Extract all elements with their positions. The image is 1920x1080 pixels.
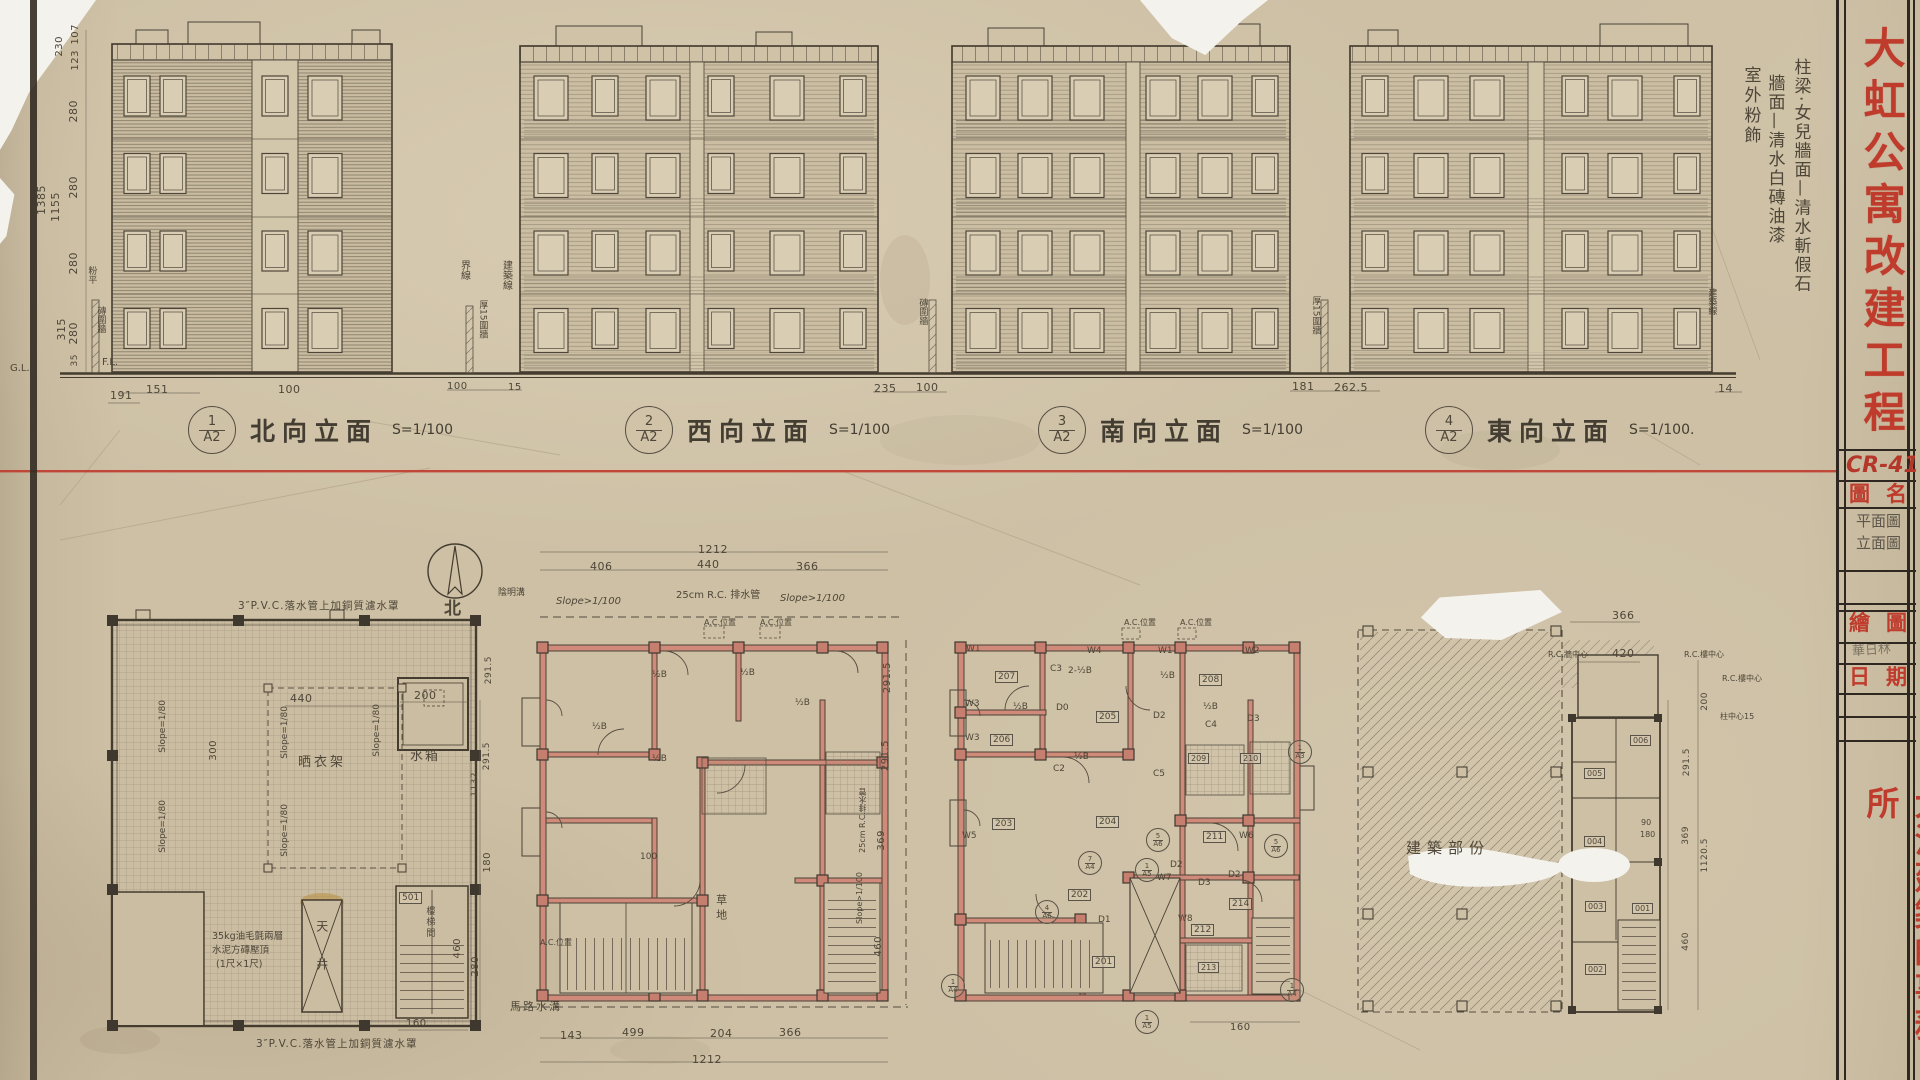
drawing-number: CR-411 <box>1846 453 1920 478</box>
wall-thickness: ½B <box>1203 702 1218 712</box>
door-tag: D3 <box>1247 714 1260 724</box>
column-tag: C4 <box>1205 720 1217 730</box>
detail-sheet: A2 <box>1053 431 1070 445</box>
water-tank-label: 水箱 <box>410 750 440 765</box>
titleblock-date-label: 日期 <box>1849 665 1920 689</box>
drying-rack-label: 晒衣架 <box>298 756 346 771</box>
window-tag: W4 <box>1087 646 1102 656</box>
dim: 90 <box>1641 818 1651 827</box>
building-line-note: 建築線 <box>1706 288 1716 315</box>
dim: 460 <box>873 936 885 957</box>
boundary-note: 界線 <box>458 260 470 280</box>
room-number: 206 <box>990 734 1013 746</box>
room-number: 213 <box>1198 962 1219 973</box>
roof-note-top: 3″P.V.C.落水管上加銅質濾水罩 <box>238 600 399 612</box>
ac-note: A.C.位置 <box>760 618 792 627</box>
dim: 291.5 <box>880 740 892 771</box>
dim: 14 <box>1718 383 1733 396</box>
dim: 100 <box>916 382 939 395</box>
lightwell-label: 天井 <box>314 920 328 996</box>
wall-thickness: ½B <box>652 754 667 764</box>
slope-note: Slope>1/100 <box>855 872 864 924</box>
titleblock-name-value-1: 平面圖 <box>1856 513 1901 530</box>
titleblock-rule <box>1836 449 1916 451</box>
room-number: 201 <box>1092 956 1115 968</box>
window-tag: W1 <box>966 644 981 654</box>
section-mark: 4A6 <box>1035 900 1059 924</box>
detail-number: 2 <box>636 415 662 431</box>
window-tag: W5 <box>962 831 977 841</box>
elevation-east-drawing <box>1350 24 1712 372</box>
finish-note-1: 柱梁·女兒牆面—清水斬假石 <box>1790 58 1810 293</box>
drain-note: 25cm R.C.排水管 <box>858 788 867 853</box>
slope-note: Slope=1/80 <box>372 704 382 757</box>
roof-slab-note: 35kg油毛氈兩層 <box>212 932 283 943</box>
road-gutter-label: 馬路水溝 <box>510 1001 562 1014</box>
dim: 291.5 <box>482 742 492 770</box>
titleblock-name-label: 圖名 <box>1849 482 1920 506</box>
section-mark: 1A5 <box>1135 858 1159 882</box>
drawing-linework <box>0 0 1920 1080</box>
dim: 499 <box>622 1027 645 1040</box>
dim: 460 <box>1681 932 1691 951</box>
detail-ref-circle: 1 A2 <box>188 406 236 454</box>
slope-note: Slope>1/100 <box>556 596 621 608</box>
dim: 191 <box>110 390 133 403</box>
room-number: 001 <box>1632 903 1653 914</box>
room-number: 003 <box>1585 901 1606 912</box>
dim: 123 <box>70 50 82 71</box>
section-mark: 1A3 <box>1288 740 1312 764</box>
elevation-title: 南向立面 <box>1100 412 1228 448</box>
slope-note: Slope=1/80 <box>158 800 168 853</box>
roof-note-bottom: 3″P.V.C.落水管上加銅質濾水罩 <box>256 1038 417 1050</box>
dim: 143 <box>560 1030 583 1043</box>
project-title: 大虹公寓改建工程 <box>1851 26 1912 442</box>
fence-note: 厚15圍牆 <box>1310 296 1320 334</box>
elevation-caption-south: 3 A2 南向立面 S=1/100 <box>1038 406 1303 454</box>
door-tag: D2 <box>1170 860 1183 870</box>
dim: 230 <box>54 36 66 57</box>
north-label: 北 <box>444 600 461 620</box>
sheet-border-left <box>30 0 37 1080</box>
ground-level-label: G.L. <box>10 363 30 375</box>
dim: 100 <box>447 381 468 393</box>
dim: 280 <box>68 252 81 275</box>
rc-floor-note: R.C.樓中心 <box>1684 650 1724 659</box>
ac-note: A.C.位置 <box>704 618 736 627</box>
dim: 280 <box>470 956 482 977</box>
wall-thickness: ½B <box>592 722 607 732</box>
titleblock-draw-signature: 華日林 <box>1852 643 1892 661</box>
room-number: 202 <box>1068 889 1091 901</box>
dim: 1132 <box>470 772 480 797</box>
column-tag: C3 <box>1050 664 1062 674</box>
slope-note: Slope=1/80 <box>280 804 290 857</box>
detail-ref-circle: 3 A2 <box>1038 406 1086 454</box>
room-number: 210 <box>1240 753 1261 764</box>
room-number: 212 <box>1191 924 1214 936</box>
dim-total: 1212 <box>698 544 728 557</box>
titleblock-rule <box>1836 693 1916 695</box>
dim: 262.5 <box>1334 382 1368 395</box>
plan-top-floor-drawing <box>516 552 908 1062</box>
detail-number: 4 <box>1436 415 1462 431</box>
dim: 280 <box>68 322 81 345</box>
dim: 180 <box>482 852 494 873</box>
dim: 366 <box>796 561 819 574</box>
floor-level-label: F.L. <box>102 357 118 369</box>
dim: 100 <box>278 384 301 397</box>
room-number: 501 <box>399 892 422 904</box>
detail-ref-circle: 2 A2 <box>625 406 673 454</box>
slope-note: Slope=1/80 <box>158 700 168 753</box>
wall-thickness: ½B <box>795 698 810 708</box>
column-tag: C5 <box>1153 769 1165 779</box>
elevation-title: 東向立面 <box>1487 412 1615 448</box>
detail-number: 1 <box>199 415 225 431</box>
dim: 291.5 <box>484 656 494 684</box>
dim-total: 1120.5 <box>1700 838 1710 873</box>
elevation-title: 北向立面 <box>250 412 378 448</box>
drawing-sheet: 大虹公寓改建工程 CR-411 圖名 平面圖 立面圖 繪圖 華日林 日期 大洪建… <box>0 0 1920 1080</box>
room-number: 006 <box>1630 735 1651 746</box>
dim: 151 <box>146 384 169 397</box>
titleblock-rule <box>1836 716 1916 718</box>
titleblock-rule <box>1844 0 1846 1080</box>
wall-thickness: ½B <box>1013 702 1028 712</box>
dim: 204 <box>710 1028 733 1041</box>
dim: 160 <box>406 1018 427 1030</box>
window-tag: W3 <box>965 733 980 743</box>
elevation-scale: S=1/100 <box>392 422 453 438</box>
detail-sheet: A2 <box>1440 431 1457 445</box>
finish-note-3: 室外粉飾 <box>1740 66 1760 146</box>
section-mark: 5A6 <box>1264 834 1288 858</box>
dim: 440 <box>290 693 313 706</box>
titleblock-rule <box>1836 603 1916 605</box>
dim: 15 <box>508 382 522 394</box>
dim: 100 <box>640 852 657 862</box>
dim: 291.5 <box>1682 748 1692 776</box>
room-number: 004 <box>1584 836 1605 847</box>
room-number: 209 <box>1188 753 1209 764</box>
elevation-caption-west: 2 A2 西向立面 S=1/100 <box>625 406 890 454</box>
dim: 180 <box>1640 830 1655 839</box>
dim: 35 <box>70 354 80 366</box>
window-tag: W6 <box>1239 831 1254 841</box>
door-tag: D1 <box>1098 915 1111 925</box>
elevation-caption-east: 4 A2 東向立面 S=1/100. <box>1425 406 1694 454</box>
dim: 280 <box>68 100 81 123</box>
section-mark: 1A5 <box>1135 1010 1159 1034</box>
column-tag: C2 <box>1053 764 1065 774</box>
rc-wall-note: R.C.牆中心 <box>1548 650 1588 659</box>
window-tag: W2 <box>1245 646 1260 656</box>
rc-floor-note: R.C.樓中心 <box>1722 674 1762 683</box>
room-number: 005 <box>1584 768 1605 779</box>
titleblock-draw-label: 繪圖 <box>1849 611 1920 635</box>
ac-note: A.C.位置 <box>1180 618 1212 627</box>
room-number: 208 <box>1199 674 1222 686</box>
north-compass <box>428 544 482 598</box>
ac-note: A.C.位置 <box>1124 618 1156 627</box>
dim-total: 1155 <box>50 192 63 222</box>
lawn-label: 草地 <box>714 894 727 924</box>
dim: 280 <box>68 176 81 199</box>
dim: 406 <box>590 561 613 574</box>
building-line-note: 建築線 <box>500 260 512 290</box>
elevation-caption-north: 1 A2 北向立面 S=1/100 <box>188 406 453 454</box>
brick-wall-note: 磚圍牆 <box>917 298 927 325</box>
dim: 300 <box>208 740 220 761</box>
elevation-north-drawing <box>112 22 392 372</box>
fence-note: 厚15圍牆 <box>477 300 487 338</box>
brick-wall-note: 磚圍牆 <box>95 306 105 333</box>
elevation-west-drawing <box>520 26 878 372</box>
room-number: 205 <box>1096 711 1119 723</box>
column-note: 2-½B <box>1068 666 1092 676</box>
detail-sheet: A2 <box>203 431 220 445</box>
dim: 369 <box>876 830 888 851</box>
dim: 366 <box>779 1027 802 1040</box>
titleblock-name-value-2: 立面圖 <box>1856 535 1901 552</box>
dim: 181 <box>1292 381 1315 394</box>
elevation-title: 西向立面 <box>687 412 815 448</box>
titleblock-rule <box>1836 570 1916 572</box>
dim: 107 <box>70 24 82 45</box>
gutter-note: 陰明溝 <box>498 588 525 598</box>
window-tag: W1 <box>1158 646 1173 656</box>
door-tag: D2 <box>1228 870 1241 880</box>
wall-thickness: ½B <box>740 668 755 678</box>
paper-tear-right <box>1558 848 1630 882</box>
room-number: 207 <box>995 671 1018 683</box>
roof-slab-note: (1尺×1尺) <box>216 960 262 971</box>
dim: 369 <box>1681 826 1691 845</box>
room-number: 204 <box>1096 816 1119 828</box>
dim-total: 1212 <box>692 1054 722 1067</box>
section-mark: 7A4 <box>1078 851 1102 875</box>
titleblock-rule <box>1836 740 1916 742</box>
dim-total: 1385 <box>36 185 49 215</box>
wall-thickness: ½B <box>1160 671 1175 681</box>
building-portion-label: 建築部份 <box>1406 840 1490 857</box>
window-tag: W7 <box>1157 873 1172 883</box>
section-mark: 1A4 <box>1280 978 1304 1002</box>
slope-note: Slope>1/100 <box>780 593 845 605</box>
dim: 440 <box>697 559 720 572</box>
window-tag: W8 <box>1178 914 1193 924</box>
plaster-note: 粉平 <box>86 266 96 284</box>
slope-note: Slope=1/80 <box>280 706 290 759</box>
dim: 200 <box>1700 692 1710 711</box>
dim: 420 <box>1612 648 1635 661</box>
finish-note-2: 牆面—清水白磚油漆 <box>1764 74 1784 245</box>
detail-ref-circle: 4 A2 <box>1425 406 1473 454</box>
wall-thickness: ½B <box>652 670 667 680</box>
wall-thickness: ½B <box>1074 752 1089 762</box>
titleblock-rule <box>1836 507 1916 509</box>
door-tag: D2 <box>1153 711 1166 721</box>
dim: 460 <box>452 938 464 959</box>
dim: 160 <box>1230 1022 1251 1034</box>
elevation-scale: S=1/100. <box>1629 422 1694 438</box>
room-number: 214 <box>1229 898 1252 910</box>
section-mark: 5A6 <box>1146 828 1170 852</box>
roof-slab-note: 水泥方磚壓頂 <box>212 946 269 957</box>
dim: 366 <box>1612 610 1635 623</box>
door-tag: D3 <box>1198 878 1211 888</box>
firm-name: 大洪建築師事務所 <box>1856 786 1920 1080</box>
detail-number: 3 <box>1049 415 1075 431</box>
door-tag: D0 <box>1056 703 1069 713</box>
room-number: 203 <box>992 818 1015 830</box>
elevation-south-drawing <box>952 24 1290 372</box>
dim: 200 <box>414 690 437 703</box>
room-number: 211 <box>1203 831 1226 843</box>
red-divider-line <box>0 470 1836 472</box>
stair-label: 樓梯間 <box>424 906 434 939</box>
section-mark: 1A4 <box>941 974 965 998</box>
drain-note: 25cm R.C. 排水管 <box>676 590 760 602</box>
dim: 235 <box>874 383 897 396</box>
dim: 291.5 <box>882 662 894 693</box>
elevation-scale: S=1/100 <box>829 422 890 438</box>
elevation-scale: S=1/100 <box>1242 422 1303 438</box>
room-number: 002 <box>1585 964 1606 975</box>
column-center-note: 柱中心15 <box>1720 712 1754 721</box>
detail-sheet: A2 <box>640 431 657 445</box>
titleblock-rule <box>1836 0 1839 1080</box>
ac-note: A.C.位置 <box>540 938 572 947</box>
window-tag: W3 <box>965 699 980 709</box>
